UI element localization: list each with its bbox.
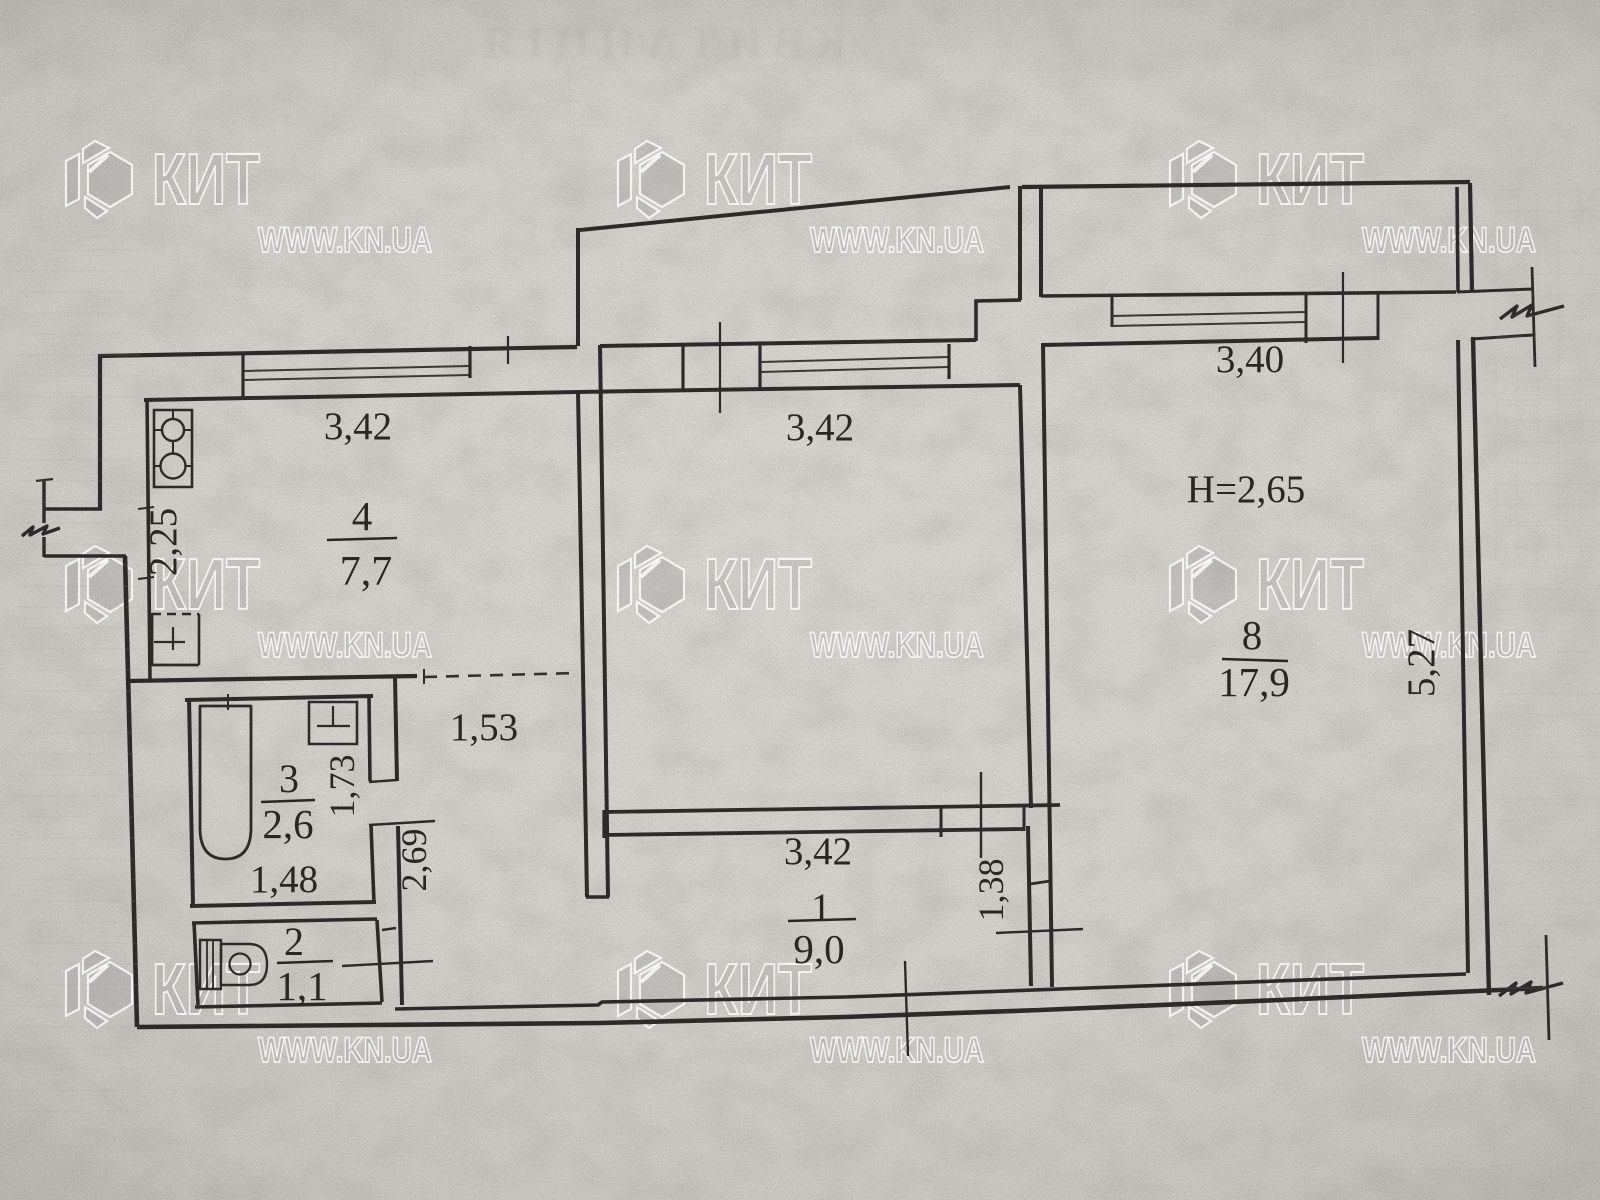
svg-text:Н=2,65: Н=2,65 xyxy=(1187,468,1305,511)
svg-text:1: 1 xyxy=(811,885,831,930)
svg-text:5,27: 5,27 xyxy=(1400,629,1443,697)
svg-text:3,42: 3,42 xyxy=(324,405,392,448)
svg-text:1,73: 1,73 xyxy=(322,755,362,818)
svg-text:7,7: 7,7 xyxy=(340,549,393,595)
svg-text:КВИТАНЦІЯ: КВИТАНЦІЯ xyxy=(473,17,847,68)
svg-text:9,0: 9,0 xyxy=(793,926,844,972)
svg-text:3,40: 3,40 xyxy=(1216,338,1284,381)
svg-text:17,9: 17,9 xyxy=(1218,659,1290,705)
svg-text:2,69: 2,69 xyxy=(394,829,434,892)
svg-text:3: 3 xyxy=(279,756,299,801)
svg-text:1,38: 1,38 xyxy=(971,859,1011,922)
svg-text:3,42: 3,42 xyxy=(784,830,852,873)
svg-text:3,42: 3,42 xyxy=(786,406,854,449)
svg-text:2: 2 xyxy=(284,919,304,964)
svg-text:1,48: 1,48 xyxy=(250,858,318,901)
svg-text:1,53: 1,53 xyxy=(450,706,518,749)
svg-text:1,1: 1,1 xyxy=(276,963,327,1009)
svg-text:2,6: 2,6 xyxy=(262,801,313,847)
svg-text:2,25: 2,25 xyxy=(142,508,185,576)
svg-text:8: 8 xyxy=(1242,612,1263,658)
svg-text:4: 4 xyxy=(352,493,373,539)
